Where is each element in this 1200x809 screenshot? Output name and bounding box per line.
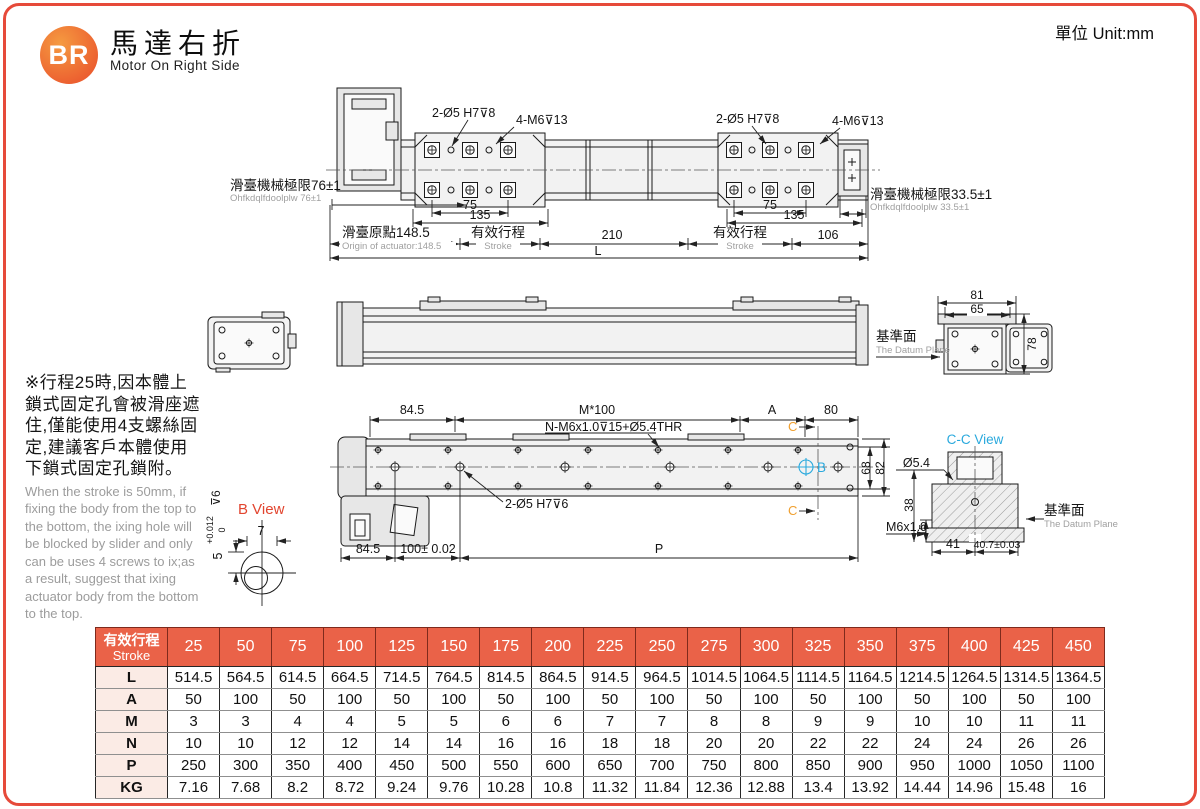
table-cell: 514.5 [168,667,220,689]
table-row: M3344556677889910101111 [96,711,1105,733]
table-cell: 50 [480,689,532,711]
stroke-zh-1: 有效行程 [471,225,525,240]
table-cell: 700 [636,755,688,777]
row-label: P [96,755,168,777]
dim-407: 40.7±0.03 [974,539,1021,551]
datum-en-cc: The Datum Plane [1044,519,1118,530]
table-cell: 14 [376,733,428,755]
table-cell: 18 [636,733,688,755]
table-cell: 3 [168,711,220,733]
table-cell: 26 [1052,733,1104,755]
dim-A: A [768,403,777,417]
table-cell: 100 [428,689,480,711]
stroke-column-header: 300 [740,628,792,667]
stroke-column-header: 350 [844,628,896,667]
table-cell: 100 [220,689,272,711]
table-cell: 16 [532,733,584,755]
table-row: KG7.167.688.28.729.249.7610.2810.811.321… [96,777,1105,799]
tol-depth: ⊽6 [209,490,223,506]
dim-65: 65 [970,302,984,316]
dim-82: 82 [873,461,887,475]
stroke-column-header: 75 [272,628,324,667]
table-cell: 964.5 [636,667,688,689]
tol-plus: +0.012 [205,516,215,544]
table-cell: 1000 [948,755,1000,777]
table-cell: 24 [896,733,948,755]
table-cell: 614.5 [272,667,324,689]
table-cell: 250 [168,755,220,777]
datum-zh-side: 基準面 [876,328,917,344]
stroke-column-header: 450 [1052,628,1104,667]
stroke-column-header: 175 [480,628,532,667]
table-cell: 564.5 [220,667,272,689]
dim-hole-bottom: 2-Ø5 H7⊽6 [505,497,568,511]
table-cell: 50 [1000,689,1052,711]
table-cell: 5 [376,711,428,733]
dim-75-right: 75 [763,198,777,212]
datum-en-side: The Datum Plane [876,345,950,356]
origin-zh: 滑臺原點148.5 [342,225,430,240]
table-cell: 8 [740,711,792,733]
dim-81: 81 [970,288,984,302]
limit-left-en: Ohfkdqlfdoolplw 76±1 [230,193,321,204]
table-cell: 9.24 [376,777,428,799]
table-cell: 100 [844,689,896,711]
datum-zh-cc: 基準面 [1044,502,1085,518]
table-cell: 1264.5 [948,667,1000,689]
stroke-column-header: 275 [688,628,740,667]
table-cell: 850 [792,755,844,777]
table-cell: 20 [740,733,792,755]
table-cell: 14.44 [896,777,948,799]
table-cell: 12 [272,733,324,755]
table-cell: 11 [1000,711,1052,733]
section-c-bottom: C [788,503,797,518]
table-cell: 8 [688,711,740,733]
stroke-column-header: 425 [1000,628,1052,667]
table-cell: 1364.5 [1052,667,1104,689]
limit-right-zh: 滑臺機械極限33.5±1 [870,187,992,202]
tol-zero: 0 [217,527,227,532]
stroke-zh-2: 有效行程 [713,225,767,240]
table-cell: 9.76 [428,777,480,799]
stroke-column-header: 375 [896,628,948,667]
dim-106: 106 [818,228,839,242]
table-cell: 12.36 [688,777,740,799]
table-cell: 6 [532,711,584,733]
table-cell: 1214.5 [896,667,948,689]
row-label: A [96,689,168,711]
table-cell: 18 [584,733,636,755]
dim-n-thread: N-M6x1.0⊽15+Ø5.4THR [545,420,682,434]
dim-135-right: 135 [784,208,805,222]
spec-table-head: 有效行程Stroke255075100125150175200225250275… [96,628,1105,667]
table-cell: 12 [324,733,376,755]
table-cell: 50 [896,689,948,711]
table-cell: 10.8 [532,777,584,799]
table-cell: 3 [220,711,272,733]
table-cell: 22 [844,733,896,755]
table-cell: 1014.5 [688,667,740,689]
spec-table-body: L514.5564.5614.5664.5714.5764.5814.5864.… [96,667,1105,799]
table-row: N101012121414161618182020222224242626 [96,733,1105,755]
stroke-column-header: 100 [324,628,376,667]
dim-m100: M*100 [579,403,615,417]
dim-68: 68 [859,461,873,475]
side-elevation-view [337,297,868,366]
table-cell: 664.5 [324,667,376,689]
table-cell: 100 [740,689,792,711]
table-cell: 914.5 [584,667,636,689]
dim-thread-left: 4-M6⊽13 [516,113,568,127]
table-cell: 350 [272,755,324,777]
table-cell: 4 [324,711,376,733]
table-cell: 550 [480,755,532,777]
table-cell: 600 [532,755,584,777]
stroke-column-header: 225 [584,628,636,667]
dim-210: 210 [602,228,623,242]
table-cell: 814.5 [480,667,532,689]
stroke-column-header: 200 [532,628,584,667]
table-cell: 20 [688,733,740,755]
table-cell: 24 [948,733,1000,755]
table-cell: 16 [1052,777,1104,799]
dim-m6: M6x1.0 [886,520,927,534]
table-cell: 1114.5 [792,667,844,689]
table-cell: 16 [480,733,532,755]
table-cell: 750 [688,755,740,777]
stroke-en-2: Stroke [726,241,753,252]
table-cell: 5 [428,711,480,733]
row-label: N [96,733,168,755]
table-cell: 7.68 [220,777,272,799]
table-cell: 800 [740,755,792,777]
dim-hole-right: 2-Ø5 H7⊽8 [716,112,779,126]
limit-left-zh: 滑臺機械極限76±1 [230,178,341,193]
table-cell: 500 [428,755,480,777]
dim-54: Ø5.4 [903,456,930,470]
dim-41: 41 [946,537,960,551]
table-cell: 100 [636,689,688,711]
table-cell: 11.84 [636,777,688,799]
table-cell: 1100 [1052,755,1104,777]
table-cell: 100 [948,689,1000,711]
table-cell: 300 [220,755,272,777]
dim-L: L [595,244,602,258]
stroke-column-header: 50 [220,628,272,667]
cc-view-title: C-C View [947,432,1004,447]
dim-hole-left: 2-Ø5 H7⊽8 [432,106,495,120]
end-view-left [208,312,296,372]
table-cell: 1314.5 [1000,667,1052,689]
table-cell: 950 [896,755,948,777]
cc-section-view: C-C View Ø5.4 38 15 M6x1.0 41 40.7±0.03 … [886,432,1118,556]
table-cell: 900 [844,755,896,777]
limit-right-en: Ohfkdqlfdoolplw 33.5±1 [870,202,969,213]
table-cell: 9 [844,711,896,733]
dim-P: P [655,542,663,556]
table-cell: 7.16 [168,777,220,799]
stroke-column-header: 250 [636,628,688,667]
table-cell: 50 [792,689,844,711]
table-cell: 50 [584,689,636,711]
table-cell: 9 [792,711,844,733]
dim-78: 78 [1025,337,1039,351]
table-cell: 50 [272,689,324,711]
table-cell: 11.32 [584,777,636,799]
table-cell: 10 [220,733,272,755]
spec-table: 有效行程Stroke255075100125150175200225250275… [95,627,1105,799]
plan-view: 2-Ø5 H7⊽8 4-M6⊽13 2-Ø5 H7⊽8 4-M6⊽13 滑臺機械… [230,88,992,261]
bottom-view: 84.5 M*100 A 80 N-M6x1.0⊽15+Ø5.4THR C C … [330,403,890,562]
table-cell: 100 [1052,689,1104,711]
table-row: P250300350400450500550600650700750800850… [96,755,1105,777]
table-cell: 50 [688,689,740,711]
b-view-title: B View [238,501,285,518]
table-cell: 450 [376,755,428,777]
b-view-detail: B View 7 5 +0.012 0 ⊽6 [205,490,296,606]
stroke-en-1: Stroke [484,241,511,252]
table-cell: 26 [1000,733,1052,755]
tol-base: 5 [211,552,225,559]
dim-845-bottom: 84.5 [356,542,380,556]
table-cell: 12.88 [740,777,792,799]
table-cell: 10 [948,711,1000,733]
table-cell: 10 [168,733,220,755]
table-cell: 7 [636,711,688,733]
dim-thread-right: 4-M6⊽13 [832,114,884,128]
table-cell: 50 [376,689,428,711]
dim-845-top: 84.5 [400,403,424,417]
table-cell: 6 [480,711,532,733]
table-cell: 13.92 [844,777,896,799]
section-c-top: C [788,419,797,434]
table-cell: 11 [1052,711,1104,733]
table-cell: 8.72 [324,777,376,799]
stroke-column-header: 325 [792,628,844,667]
row-label: KG [96,777,168,799]
dim-7: 7 [258,524,265,538]
dim-100: 100± 0.02 [400,542,456,556]
stroke-column-header: 400 [948,628,1000,667]
dim-38: 38 [902,498,916,512]
table-cell: 15.48 [1000,777,1052,799]
stroke-column-header: 150 [428,628,480,667]
table-cell: 714.5 [376,667,428,689]
table-cell: 400 [324,755,376,777]
dim-80: 80 [824,403,838,417]
table-cell: 764.5 [428,667,480,689]
table-cell: 22 [792,733,844,755]
table-cell: 100 [532,689,584,711]
table-cell: 10.28 [480,777,532,799]
table-cell: 50 [168,689,220,711]
table-cell: 1050 [1000,755,1052,777]
table-cell: 4 [272,711,324,733]
table-cell: 8.2 [272,777,324,799]
view-b-marker: B [817,460,826,475]
stroke-column-header: 25 [168,628,220,667]
table-cell: 14 [428,733,480,755]
table-cell: 1064.5 [740,667,792,689]
row-label: M [96,711,168,733]
table-cell: 7 [584,711,636,733]
end-view-datum: 81 65 78 基準面 The Datum Plane [876,288,1052,374]
table-cell: 100 [324,689,376,711]
table-cell: 650 [584,755,636,777]
table-row: L514.5564.5614.5664.5714.5764.5814.5864.… [96,667,1105,689]
row-label: L [96,667,168,689]
table-cell: 14.96 [948,777,1000,799]
table-cell: 864.5 [532,667,584,689]
dim-135-left: 135 [470,208,491,222]
table-cell: 13.4 [792,777,844,799]
origin-en: Origin of actuator:148.5 [342,241,441,252]
stroke-column-header: 125 [376,628,428,667]
table-cell: 1164.5 [844,667,896,689]
stroke-header-cell: 有效行程Stroke [96,628,168,667]
table-cell: 10 [896,711,948,733]
table-row: A501005010050100501005010050100501005010… [96,689,1105,711]
